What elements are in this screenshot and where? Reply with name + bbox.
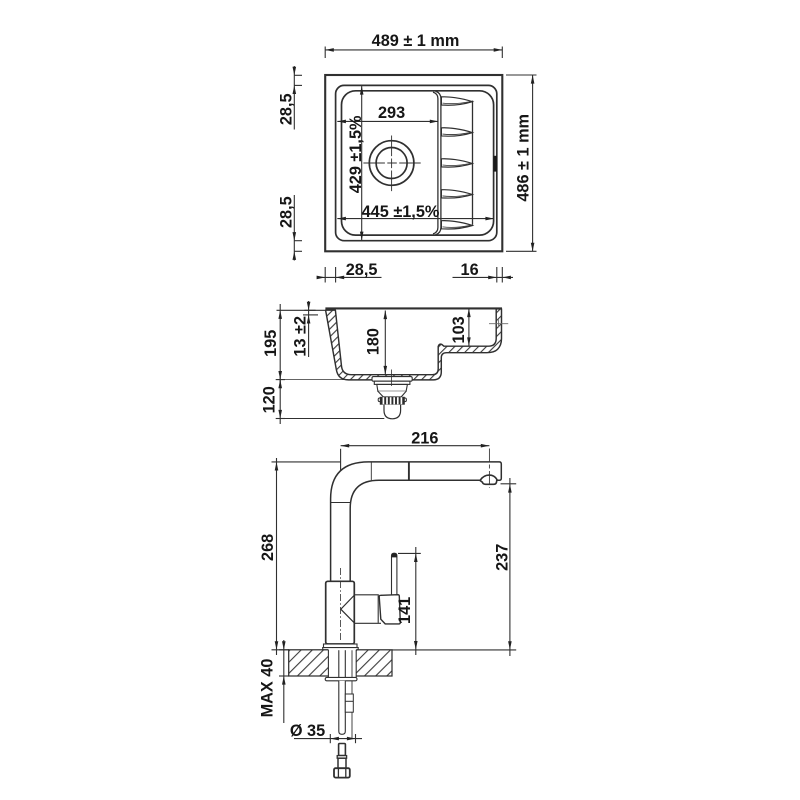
svg-text:141: 141 [396, 597, 414, 624]
svg-text:489 ± 1 mm: 489 ± 1 mm [372, 32, 460, 50]
svg-text:180: 180 [365, 328, 383, 355]
svg-text:445 ±1,5%: 445 ±1,5% [362, 203, 440, 221]
svg-text:486 ± 1 mm: 486 ± 1 mm [515, 114, 533, 202]
svg-text:216: 216 [411, 430, 438, 448]
svg-text:28,5: 28,5 [278, 93, 296, 125]
svg-text:237: 237 [493, 544, 511, 571]
svg-text:195: 195 [262, 330, 280, 357]
svg-text:268: 268 [259, 534, 277, 561]
svg-text:120: 120 [260, 386, 278, 413]
svg-text:MAX 40: MAX 40 [259, 659, 277, 718]
svg-text:13 ±2: 13 ±2 [291, 316, 309, 357]
svg-text:103: 103 [450, 316, 468, 343]
svg-text:Ø 35: Ø 35 [290, 722, 325, 740]
svg-text:16: 16 [461, 261, 479, 279]
svg-text:28,5: 28,5 [278, 196, 296, 228]
svg-text:429 ±1,5%: 429 ±1,5% [347, 115, 365, 193]
svg-text:293: 293 [378, 104, 405, 122]
svg-text:28,5: 28,5 [346, 261, 378, 279]
